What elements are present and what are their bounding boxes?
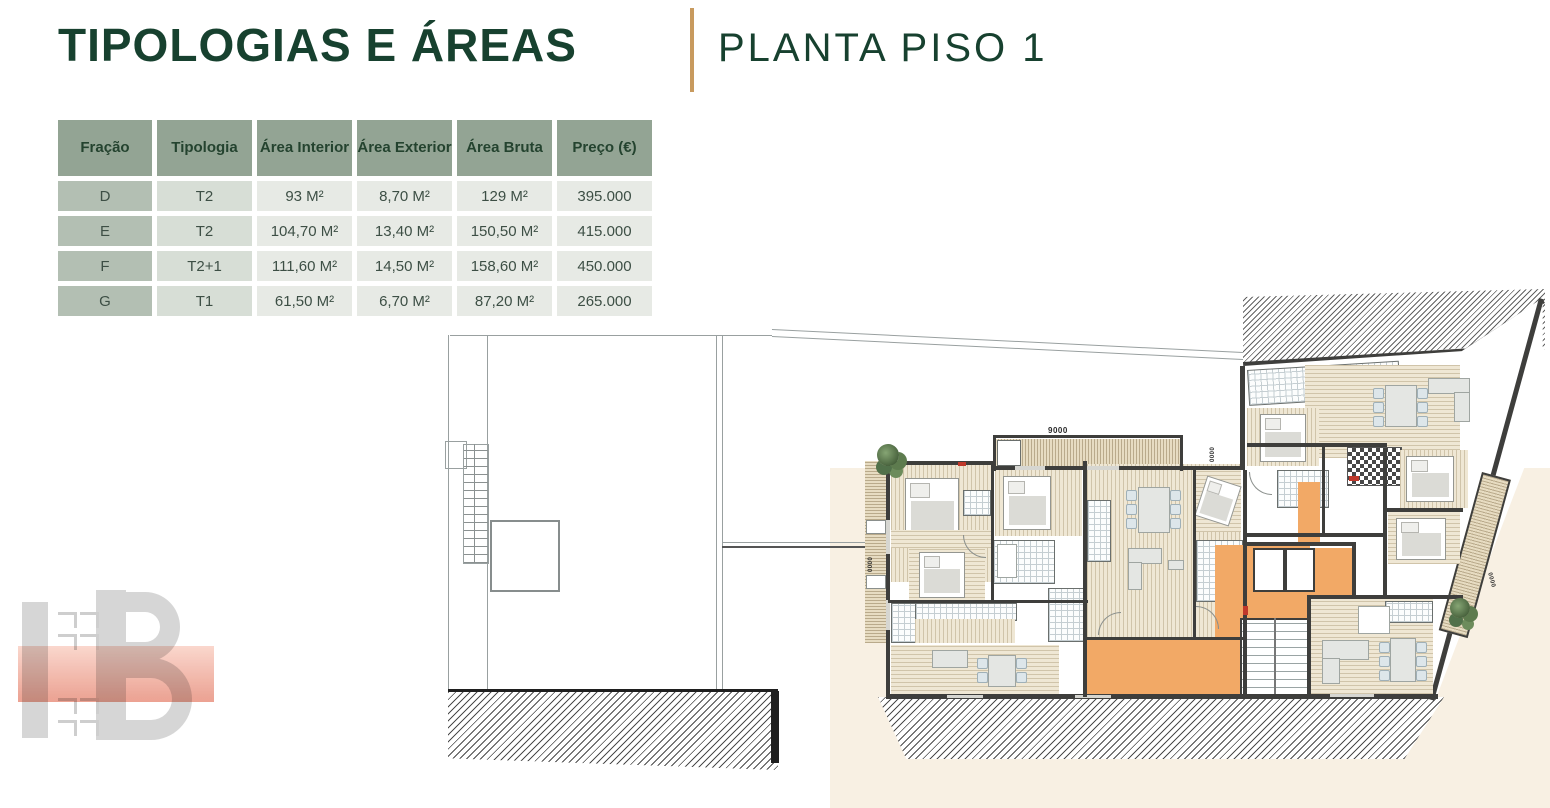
site-boundary-line	[722, 335, 723, 703]
chair	[1416, 670, 1427, 681]
dining-table	[1138, 487, 1170, 533]
table-cell: 14,50 M²	[357, 251, 452, 281]
window	[1075, 695, 1111, 698]
table-cell: T1	[157, 286, 252, 316]
wall	[993, 435, 1183, 438]
wall	[991, 461, 994, 602]
page-title: TIPOLOGIAS E ÁREAS	[58, 18, 577, 72]
living-room-floor	[891, 645, 1059, 695]
chair	[1126, 490, 1137, 501]
bed	[919, 552, 965, 598]
chair	[977, 672, 988, 683]
elevator	[1285, 548, 1315, 592]
window-icon	[58, 720, 77, 736]
planter-box	[866, 575, 886, 589]
table-cell: 415.000	[557, 216, 652, 246]
window	[1015, 466, 1045, 470]
kitchen-counter	[1087, 500, 1111, 562]
chair	[1126, 518, 1137, 529]
chair	[1417, 388, 1428, 399]
site-boundary-line	[448, 335, 449, 692]
col-header-area-interior: Área Interior	[257, 120, 352, 176]
logo-red-band	[18, 646, 214, 702]
site-boundary-line	[772, 329, 1245, 353]
window	[1085, 466, 1119, 470]
door-accent	[958, 462, 966, 466]
site-door-gap	[506, 586, 522, 590]
title-divider	[690, 8, 694, 92]
sidewalk-hatch-building	[878, 697, 1444, 759]
door-accent	[1243, 606, 1248, 615]
table-cell: D	[58, 181, 152, 211]
table-cell: 93 M²	[257, 181, 352, 211]
dimension-label-west: 0000	[868, 557, 874, 572]
wall	[1322, 445, 1325, 533]
wall	[1243, 470, 1247, 697]
wall	[888, 461, 995, 465]
sofa	[1128, 562, 1142, 590]
wall	[888, 600, 1088, 603]
site-staircase	[463, 444, 489, 564]
sofa	[1322, 640, 1369, 660]
col-header-tipologia: Tipologia	[157, 120, 252, 176]
areas-table: Fração Tipologia Área Interior Área Exte…	[58, 120, 652, 316]
chair	[1416, 642, 1427, 653]
bed	[1406, 456, 1454, 502]
bed	[1260, 414, 1306, 462]
wall	[1387, 508, 1463, 512]
site-boundary-line	[722, 542, 886, 543]
col-header-fracao: Fração	[58, 120, 152, 176]
table-cell: T2	[157, 181, 252, 211]
tv-unit	[1168, 560, 1184, 570]
window	[1330, 694, 1374, 697]
table-cell: 13,40 M²	[357, 216, 452, 246]
planter-box	[866, 520, 886, 534]
table-cell: 150,50 M²	[457, 216, 552, 246]
sofa	[1322, 658, 1340, 684]
chair	[1126, 504, 1137, 515]
site-door-gap	[536, 586, 548, 590]
kitchen-counter	[1385, 601, 1433, 623]
chair	[977, 658, 988, 669]
window	[886, 600, 890, 630]
chair	[1416, 656, 1427, 667]
bed	[1003, 476, 1051, 530]
site-staircase-rail	[474, 444, 475, 562]
table-cell: 395.000	[557, 181, 652, 211]
table-cell: 111,60 M²	[257, 251, 352, 281]
corridor-common-area	[1310, 548, 1355, 600]
bathroom-tiles	[891, 603, 917, 643]
kitchen-floor	[915, 619, 1015, 643]
chair	[1373, 388, 1384, 399]
col-header-preco: Preço (€)	[557, 120, 652, 176]
wall	[1085, 637, 1245, 640]
table-cell: 61,50 M²	[257, 286, 352, 316]
elevator	[1253, 548, 1285, 592]
wall	[1083, 461, 1087, 697]
table-cell: 129 M²	[457, 181, 552, 211]
plant	[877, 444, 899, 466]
chair	[1379, 656, 1390, 667]
site-boundary-line	[722, 546, 886, 548]
wall	[1352, 542, 1356, 602]
wall	[1383, 448, 1387, 598]
dining-table	[1390, 638, 1416, 682]
bathtub	[997, 544, 1017, 578]
table-cell: T2+1	[157, 251, 252, 281]
table-cell: 87,20 M²	[457, 286, 552, 316]
dimension-label-top: 9000	[1048, 426, 1068, 435]
chair	[1379, 670, 1390, 681]
chair	[1170, 504, 1181, 515]
wall	[1247, 533, 1387, 537]
page-subtitle: PLANTA PISO 1	[718, 26, 1048, 71]
wall	[1240, 366, 1245, 470]
sidewalk-edge	[448, 689, 778, 692]
chair	[1373, 416, 1384, 427]
west-balcony-deck	[865, 461, 888, 643]
table-cell: E	[58, 216, 152, 246]
window	[947, 695, 983, 698]
bed	[1396, 518, 1446, 560]
sidewalk-hatch-left	[448, 692, 778, 770]
table-cell: 158,60 M²	[457, 251, 552, 281]
chair	[1417, 416, 1428, 427]
col-header-area-bruta: Área Bruta	[457, 120, 552, 176]
brochure-page: TIPOLOGIAS E ÁREAS PLANTA PISO 1 Fração …	[0, 0, 1550, 808]
dimension-label-terrace: 0000	[1210, 447, 1216, 462]
chair	[1016, 672, 1027, 683]
wall	[1247, 443, 1387, 447]
chair	[1373, 402, 1384, 413]
table-cell: 450.000	[557, 251, 652, 281]
table-cell: T2	[157, 216, 252, 246]
staircase-rail	[1274, 618, 1276, 694]
chair	[1016, 658, 1027, 669]
sidewalk-edge	[771, 691, 779, 763]
table-cell: G	[58, 286, 152, 316]
site-boundary-line	[716, 335, 717, 703]
window	[886, 520, 890, 554]
sofa	[1454, 392, 1470, 422]
door-accent	[1349, 476, 1359, 481]
chair	[1170, 490, 1181, 501]
kitchen-island	[1358, 606, 1390, 634]
dining-table	[988, 655, 1016, 687]
sofa	[932, 650, 968, 668]
staircase	[1240, 618, 1314, 698]
col-header-area-exterior: Área Exterior	[357, 120, 452, 176]
dining-table	[1385, 385, 1417, 427]
table-cell: 8,70 M²	[357, 181, 452, 211]
hb-logo-watermark	[18, 590, 218, 750]
wall	[886, 461, 890, 699]
site-boundary-line	[450, 335, 772, 336]
window-icon	[80, 612, 99, 628]
table-cell: 265.000	[557, 286, 652, 316]
site-room-outline	[490, 520, 560, 592]
window-icon	[80, 720, 99, 736]
chair	[1379, 642, 1390, 653]
bathroom-tiles	[963, 490, 991, 516]
terrace-storage-box	[997, 440, 1021, 466]
plant	[1450, 598, 1470, 618]
chair	[1417, 402, 1428, 413]
wall	[1243, 542, 1355, 546]
table-cell: F	[58, 251, 152, 281]
chair	[1170, 518, 1181, 529]
table-cell: 6,70 M²	[357, 286, 452, 316]
window-icon	[58, 612, 77, 628]
table-cell: 104,70 M²	[257, 216, 352, 246]
bathroom-tiles	[1048, 588, 1087, 642]
